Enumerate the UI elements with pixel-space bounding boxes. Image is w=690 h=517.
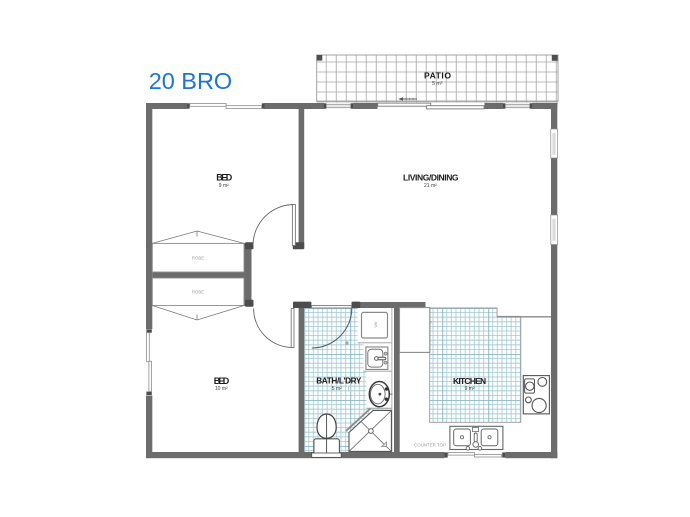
svg-text:ROBE: ROBE [192,256,204,261]
svg-text:PATIO: PATIO [424,71,451,81]
svg-text:BED: BED [214,376,230,386]
svg-text:9 m²: 9 m² [219,183,229,189]
svg-text:5 m²: 5 m² [432,81,443,87]
svg-text:21 m²: 21 m² [424,183,437,189]
svg-text:COUNTER TOP: COUNTER TOP [414,443,446,448]
svg-text:9 m²: 9 m² [465,386,475,392]
svg-text:10 m²: 10 m² [215,386,228,392]
svg-text:ROBE: ROBE [192,290,204,295]
svg-text:5 m²: 5 m² [332,386,342,392]
svg-text:BED: BED [216,173,233,183]
svg-text:KITCHEN: KITCHEN [453,376,486,386]
svg-text:BATH/L'DRY: BATH/L'DRY [316,376,362,385]
svg-text:WM: WM [374,321,378,327]
svg-text:LIVING/DINING: LIVING/DINING [403,173,459,183]
svg-text:20 BRO: 20 BRO [149,68,233,94]
